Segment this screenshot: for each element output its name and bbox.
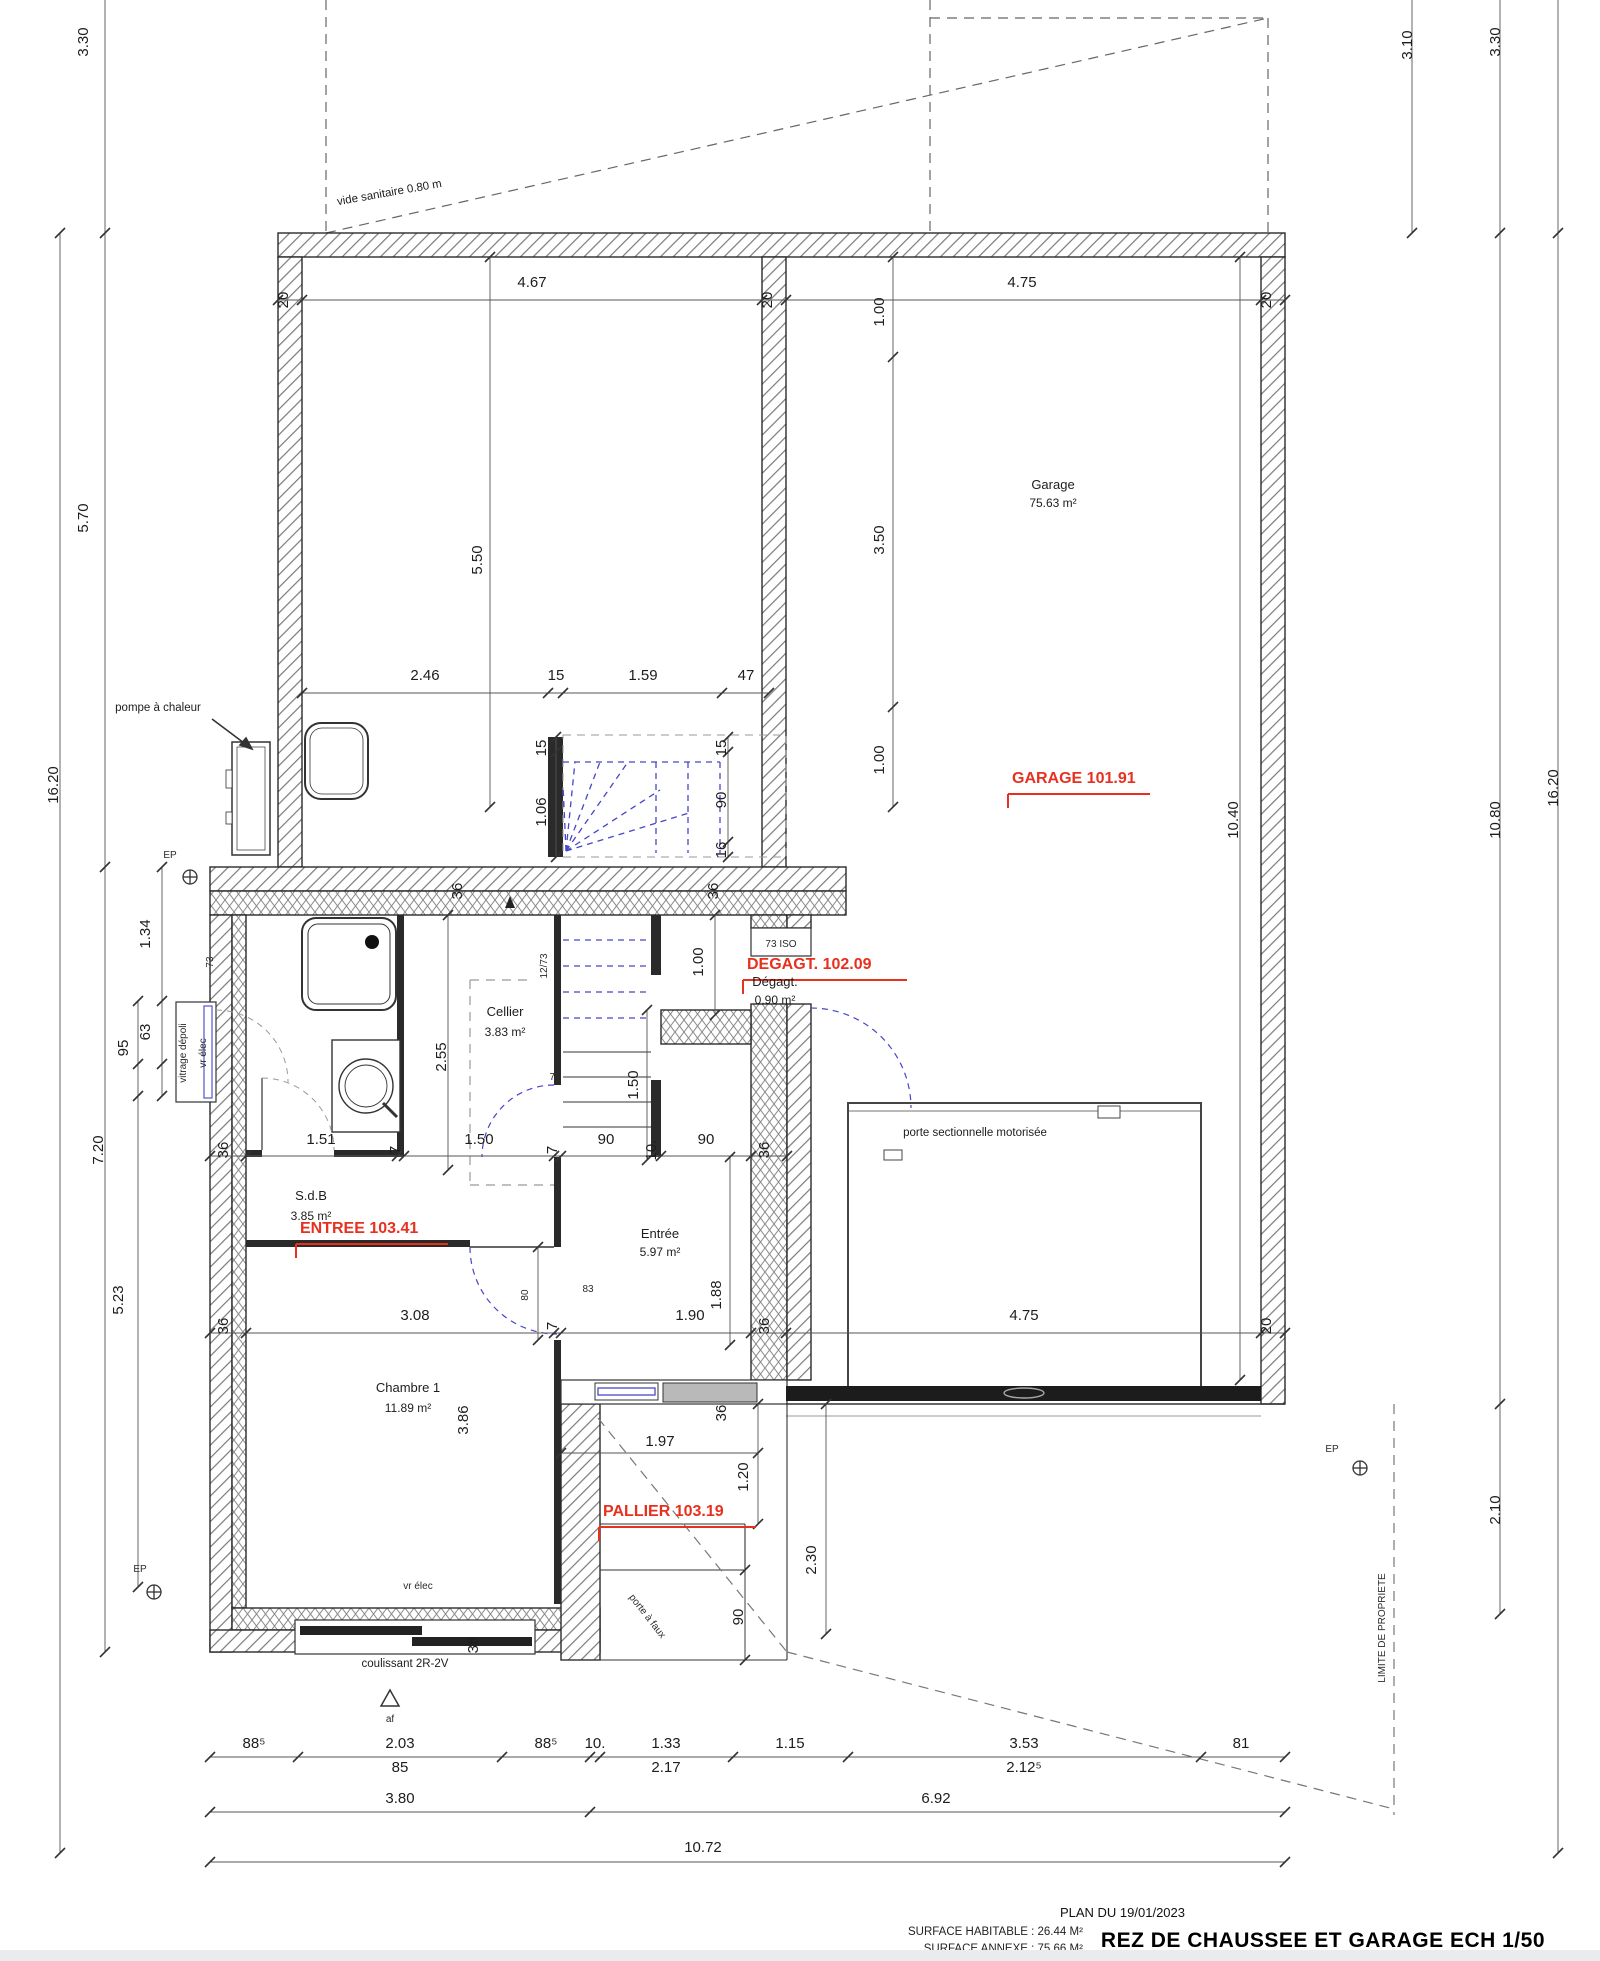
dim-1-97: 1.97 bbox=[645, 1433, 674, 1450]
dim-95-left: 95 bbox=[115, 1040, 132, 1057]
dim-wall-20-top-left: 20 bbox=[275, 292, 292, 309]
level-label-garage: GARAGE 101.91 bbox=[1012, 770, 1136, 787]
dim-88-5-b: 88⁵ bbox=[535, 1735, 558, 1752]
room-label-garage: Garage bbox=[1031, 477, 1074, 492]
room-label-sdb: S.d.B bbox=[295, 1188, 327, 1203]
dim-3-53: 3.53 bbox=[1009, 1735, 1038, 1752]
dim-4-75-top: 4.75 bbox=[1007, 274, 1036, 291]
dim-5-50-depot: 5.50 bbox=[469, 545, 486, 574]
dim-4-75-door: 4.75 bbox=[1009, 1307, 1038, 1324]
dim-1-51: 1.51 bbox=[306, 1131, 335, 1148]
front-door bbox=[663, 1383, 757, 1402]
dim-7-row3: 7 bbox=[544, 1322, 561, 1330]
shower-drain bbox=[365, 935, 379, 949]
dim-2-46: 2.46 bbox=[410, 667, 439, 684]
dim-1-00-garage-mid: 1.00 bbox=[871, 745, 888, 774]
coulissant-window bbox=[295, 1620, 535, 1654]
entree-window bbox=[595, 1383, 658, 1400]
dim-80-door: 80 bbox=[520, 1289, 531, 1301]
note-83: 83 bbox=[582, 1284, 594, 1295]
room-label-entree: Entrée bbox=[641, 1226, 679, 1241]
dim-63-left: 63 bbox=[137, 1024, 154, 1041]
dim-10-bottom: 10. bbox=[585, 1735, 606, 1752]
dim-1-50-row2: 1.50 bbox=[464, 1131, 493, 1148]
floor-plan-drawing: 204.67204.75203.305.7016.207.201.3463955… bbox=[0, 0, 1600, 1961]
dim-16-stair: 16 bbox=[713, 842, 730, 859]
dim-1-88-entree: 1.88 bbox=[708, 1280, 725, 1309]
dim-1-00-garage-top: 1.00 bbox=[871, 297, 888, 326]
dim-2-03: 2.03 bbox=[385, 1735, 414, 1752]
dim-36-row2-right: 36 bbox=[756, 1142, 773, 1159]
dim-1-90: 1.90 bbox=[675, 1307, 704, 1324]
note-73-iso: 73 ISO bbox=[765, 939, 796, 950]
note-vitrage-depoli: vitrage dépoli bbox=[178, 1023, 189, 1082]
dim-7-row2-a: 7 bbox=[387, 1146, 404, 1154]
entree-front-wall bbox=[561, 1380, 787, 1404]
area-label-garage: 75.63 m² bbox=[1029, 496, 1076, 510]
dim-1-15: 1.15 bbox=[775, 1735, 804, 1752]
dim-3-80: 3.80 bbox=[385, 1790, 414, 1807]
dim-20-row3: 20 bbox=[1258, 1318, 1275, 1335]
surface-habitable: SURFACE HABITABLE : 26.44 M² bbox=[908, 1924, 1083, 1941]
dim-1-20: 1.20 bbox=[735, 1462, 752, 1491]
note-ep-bottom-left: EP bbox=[133, 1564, 147, 1575]
water-heater bbox=[305, 723, 368, 799]
ep-symbol-bottom-left bbox=[147, 1585, 161, 1599]
dim-1-50-stair-low: 1.50 bbox=[625, 1070, 642, 1099]
plan-date: PLAN DU 19/01/2023 bbox=[765, 1905, 1545, 1920]
washbasin bbox=[332, 1040, 400, 1132]
dim-36-row3-right: 36 bbox=[756, 1318, 773, 1335]
dim-90-pallier: 90 bbox=[730, 1609, 747, 1626]
dim-4-67: 4.67 bbox=[517, 274, 546, 291]
dim-10-row2: 10. bbox=[643, 1140, 660, 1161]
heat-pump-unit bbox=[226, 742, 270, 855]
dim-5-70-left: 5.70 bbox=[75, 503, 92, 532]
dim-16-20-left: 16.20 bbox=[45, 766, 62, 804]
note-ep-top-left: EP bbox=[163, 850, 177, 861]
dim-36-frontwall-b: 36 bbox=[705, 883, 722, 900]
dim-47: 47 bbox=[738, 667, 755, 684]
dim-10-80-right: 10.80 bbox=[1487, 801, 1504, 839]
dim-5-23-left: 5.23 bbox=[110, 1285, 127, 1314]
dim-1-06-stair: 1.06 bbox=[533, 797, 550, 826]
shower-tray bbox=[302, 918, 396, 1010]
dim-7-20-left: 7.20 bbox=[90, 1135, 107, 1164]
dim-36-row2-left: 36 bbox=[215, 1142, 232, 1159]
area-label-cellier: 3.83 m² bbox=[485, 1025, 526, 1039]
level-label-entree: ENTREE 103.41 bbox=[300, 1220, 418, 1237]
dim-36-bottom-wall: 36 bbox=[465, 1637, 482, 1654]
room-label-degagt: Dégagt. bbox=[752, 974, 798, 989]
dim-6-92: 6.92 bbox=[921, 1790, 950, 1807]
room-label-chambre1: Chambre 1 bbox=[376, 1380, 440, 1395]
note-ep-bottom-right: EP bbox=[1325, 1444, 1339, 1455]
area-label-degagt: 0.90 m² bbox=[755, 993, 796, 1007]
dim-36-frontwall-a: 36 bbox=[449, 883, 466, 900]
dim-90-row2-a: 90 bbox=[598, 1131, 615, 1148]
dim-90-stair: 90 bbox=[713, 792, 730, 809]
dim-10-72: 10.72 bbox=[684, 1839, 722, 1856]
dim-15-row: 15 bbox=[548, 667, 565, 684]
dim-2-17: 2.17 bbox=[651, 1759, 680, 1776]
note-af: af bbox=[386, 1714, 395, 1725]
note-pompe-chaleur: pompe à chaleur bbox=[115, 702, 201, 714]
dim-36-row3-left: 36 bbox=[215, 1318, 232, 1335]
level-label-pallier: PALLIER 103.19 bbox=[603, 1503, 724, 1520]
dim-3-50-garage: 3.50 bbox=[871, 525, 888, 554]
dim-1-00-degagt: 1.00 bbox=[690, 947, 707, 976]
dim-3-10-right: 3.10 bbox=[1399, 30, 1416, 59]
dim-10-40-garage: 10.40 bbox=[1225, 801, 1242, 839]
dim-3-08: 3.08 bbox=[400, 1307, 429, 1324]
dim-3-86-chambre: 3.86 bbox=[455, 1405, 472, 1434]
dim-wall-20-top-mid: 20 bbox=[759, 292, 776, 309]
room-label-cellier: Cellier bbox=[487, 1004, 525, 1019]
bottom-gray-bar bbox=[0, 1950, 1600, 1961]
note-vr-elec-chambre: vr élec bbox=[403, 1581, 432, 1592]
dim-88-5-a: 88⁵ bbox=[243, 1735, 266, 1752]
dim-15-stair-left: 15 bbox=[533, 740, 550, 757]
dim-81: 81 bbox=[1233, 1735, 1250, 1752]
floor-plan-page: 204.67204.75203.305.7016.207.201.3463955… bbox=[0, 0, 1600, 1961]
note-vr-elec-sdb: vr élec bbox=[198, 1038, 209, 1067]
note-73-entree: 73 bbox=[549, 1072, 561, 1083]
dim-2-12-5: 2.12⁵ bbox=[1006, 1759, 1041, 1776]
dim-1-59: 1.59 bbox=[628, 667, 657, 684]
dim-wall-20-top-right: 20 bbox=[1258, 292, 1275, 309]
dim-2-10-right: 2.10 bbox=[1487, 1495, 1504, 1524]
dim-3-30-left: 3.30 bbox=[75, 27, 92, 56]
note-12-73: 12/73 bbox=[539, 953, 550, 978]
area-label-chambre1: 11.89 m² bbox=[385, 1401, 431, 1415]
dim-3-30-right: 3.30 bbox=[1487, 27, 1504, 56]
dim-85: 85 bbox=[392, 1759, 409, 1776]
ep-symbol-top-left bbox=[183, 870, 197, 884]
dim-15-stair-right: 15 bbox=[713, 740, 730, 757]
dim-2-30: 2.30 bbox=[803, 1545, 820, 1574]
area-label-entree: 5.97 m² bbox=[640, 1245, 681, 1259]
dim-90-row2-b: 90 bbox=[698, 1131, 715, 1148]
note-73-left: 73 bbox=[205, 956, 216, 968]
dim-1-33: 1.33 bbox=[651, 1735, 680, 1752]
dim-1-34-left: 1.34 bbox=[137, 919, 154, 948]
dim-2-55-cellier: 2.55 bbox=[433, 1042, 450, 1071]
ep-symbol-bottom-right bbox=[1353, 1461, 1367, 1475]
dim-7-row2-b: 7 bbox=[544, 1146, 561, 1154]
level-label-degagt: DEGAGT. 102.09 bbox=[747, 956, 872, 973]
note-limite-propriete: LIMITE DE PROPRIETE bbox=[1377, 1573, 1388, 1683]
note-coulissant: coulissant 2R-2V bbox=[362, 1658, 449, 1670]
dim-36-entree-door: 36 bbox=[713, 1405, 730, 1422]
note-porte-sectionnelle: porte sectionnelle motorisée bbox=[903, 1127, 1047, 1139]
dim-16-20-right: 16.20 bbox=[1545, 769, 1562, 807]
